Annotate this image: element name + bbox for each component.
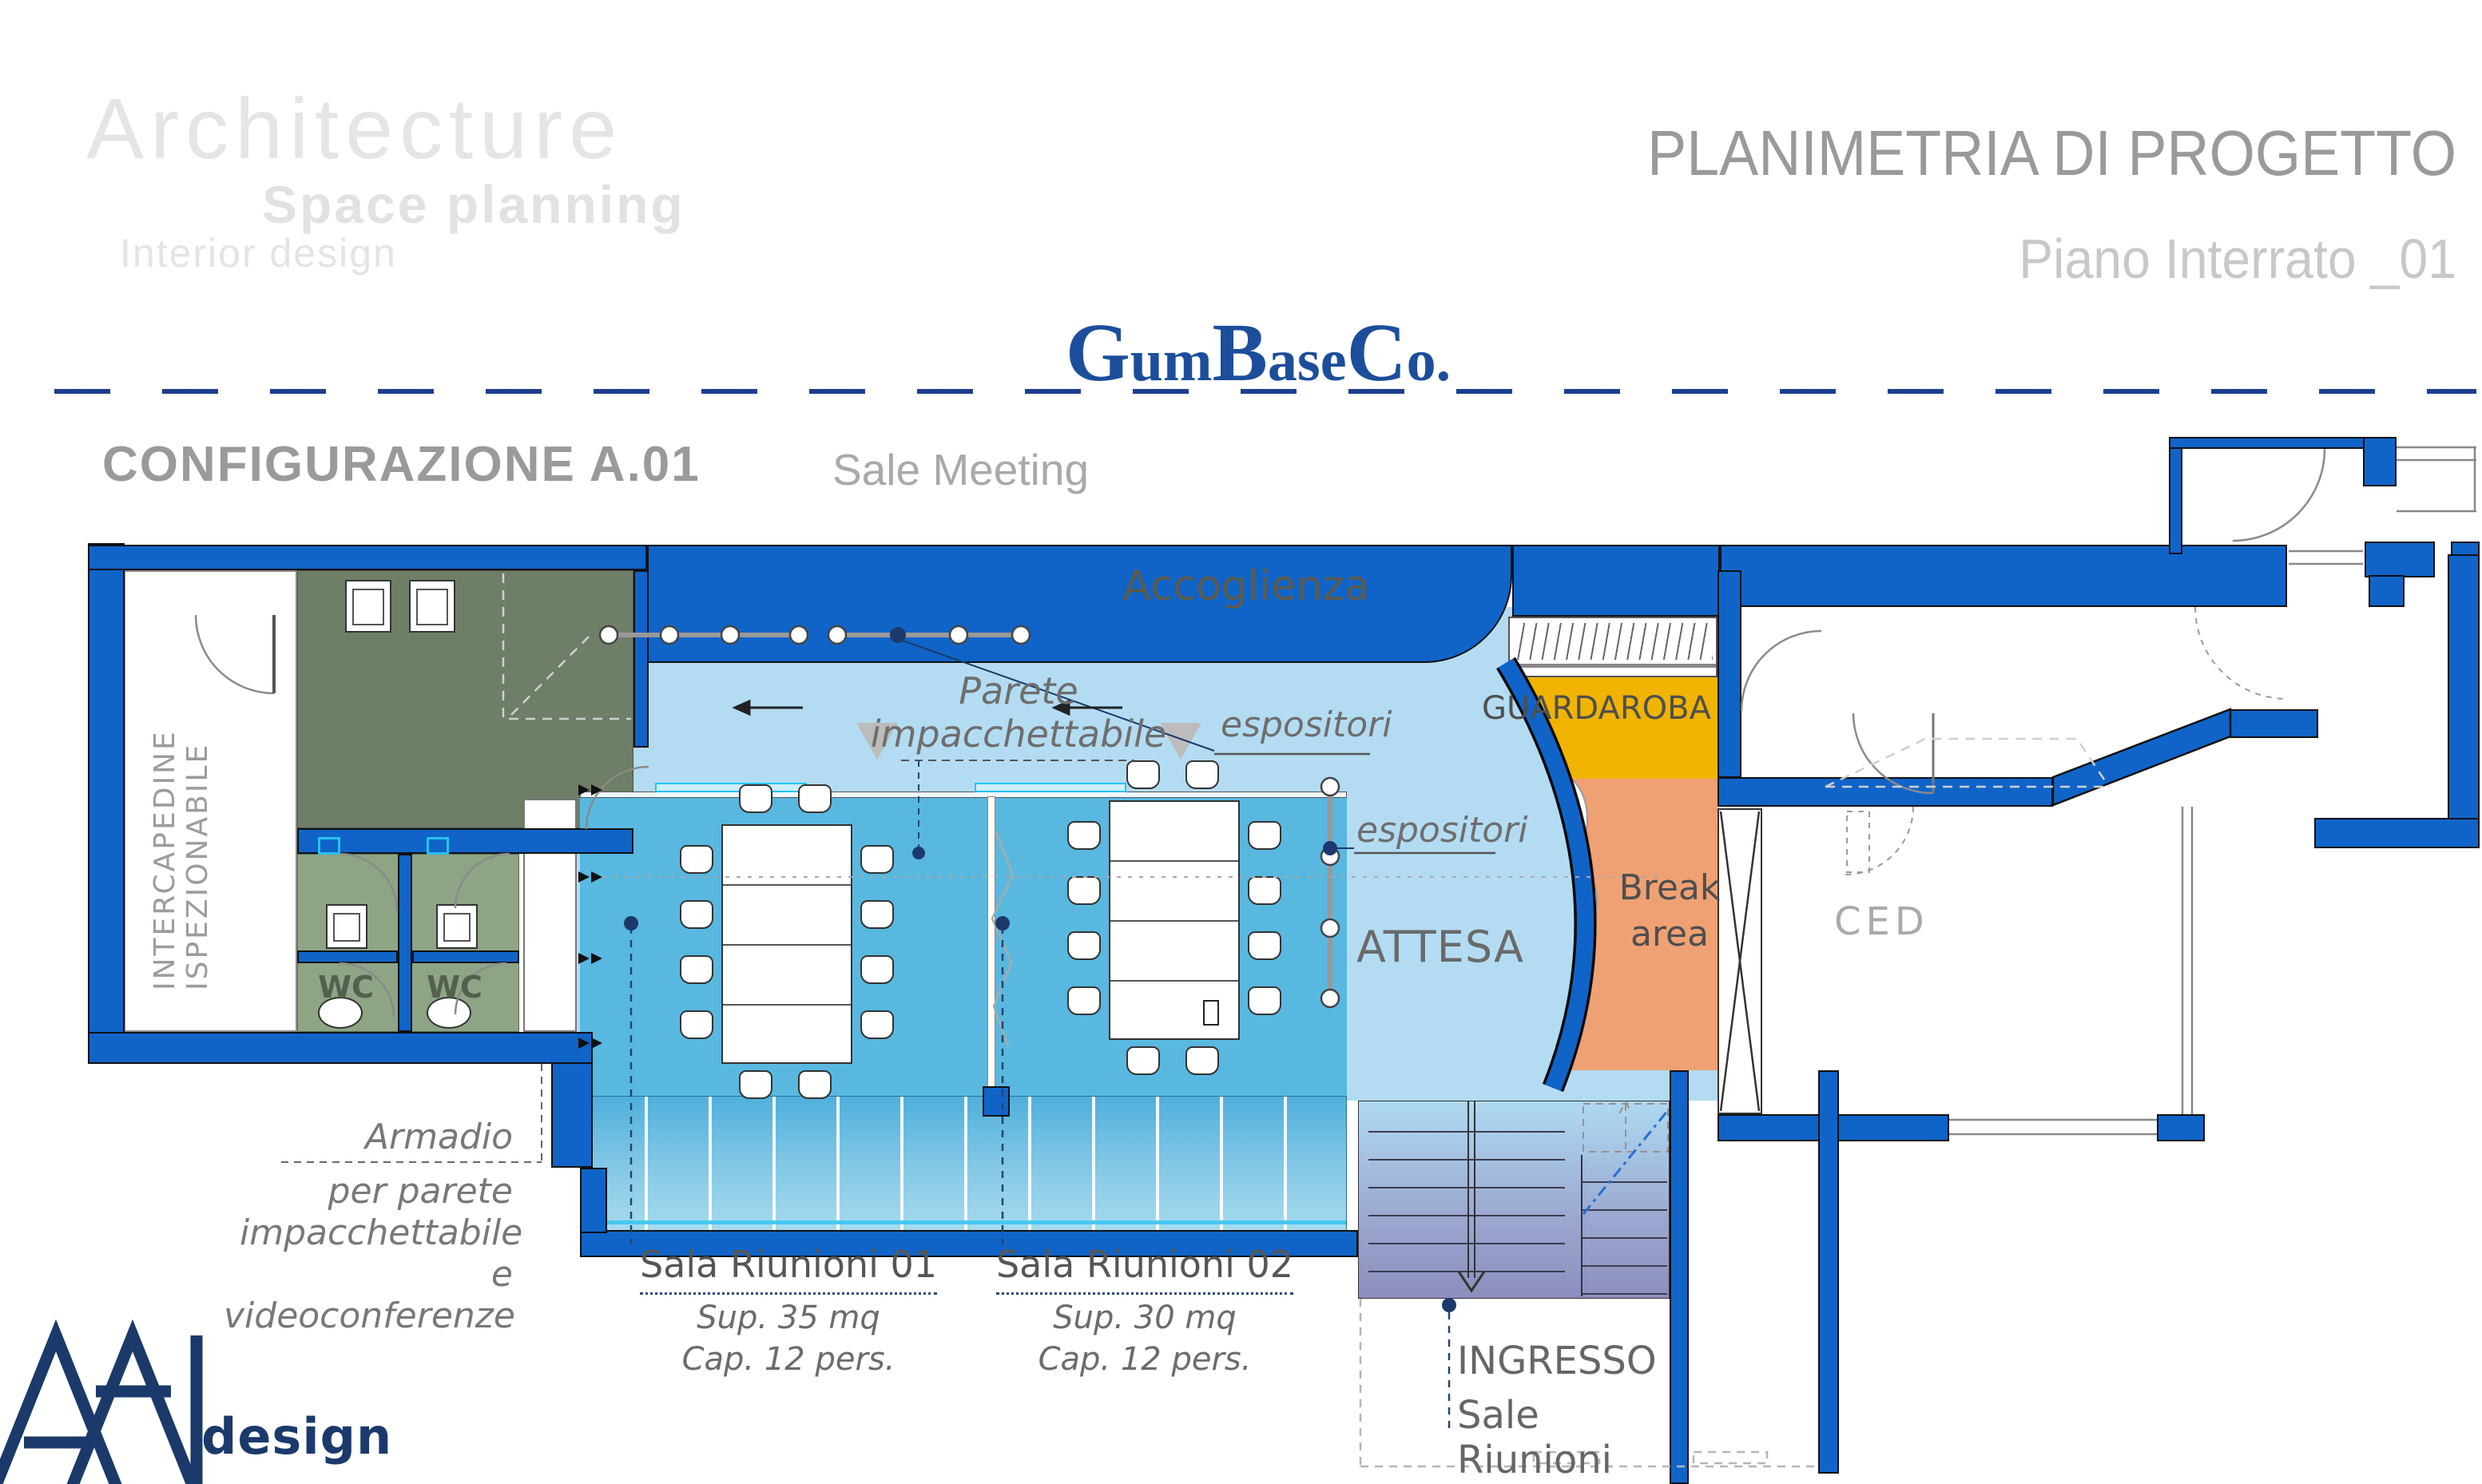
door-arc xyxy=(1741,631,1821,711)
sala1-cap: Cap. 12 pers. xyxy=(609,1341,968,1378)
label-armadio-4: e xyxy=(264,1254,513,1295)
door-arc xyxy=(340,854,397,911)
label-intercapedine: INTERCAPEDINE ISPEZIONABILE xyxy=(149,615,214,990)
label-armadio-2: per parete xyxy=(264,1171,513,1212)
door-arc xyxy=(455,854,510,908)
door-arc-dashed xyxy=(1845,807,1913,875)
label-attesa: ATTESA xyxy=(1356,922,1540,972)
ceiling-projection xyxy=(511,633,593,715)
label-wc2: WC xyxy=(427,970,483,1005)
label-ingresso-1: INGRESSO xyxy=(1457,1339,1665,1383)
label-sala1: Sala Riunioni 01 Sup. 35 mq Cap. 12 pers… xyxy=(609,1243,968,1378)
sala1-sup: Sup. 35 mq xyxy=(609,1299,968,1336)
wall-marker-arrows xyxy=(578,784,602,1049)
label-intercapedine-line1: INTERCAPEDINE xyxy=(149,729,181,990)
sala1-name: Sala Riunioni 01 xyxy=(640,1243,937,1295)
label-ingresso-2: Sale Riunioni xyxy=(1457,1393,1697,1482)
stairs-handrail-dashed xyxy=(1583,1110,1668,1214)
label-ced: CED xyxy=(1834,899,1962,944)
sala2-name: Sala Riunioni 02 xyxy=(996,1243,1293,1295)
label-guardaroba: GUARDAROBA xyxy=(1482,690,1710,727)
floor-plan-sheet: Architecture Space planning Interior des… xyxy=(0,0,2482,1484)
ama-monogram xyxy=(0,1335,197,1484)
label-parete-1: Parete xyxy=(903,669,1134,712)
door-arc-dashed xyxy=(2195,607,2287,699)
label-accoglienza: Accoglienza xyxy=(999,562,1494,610)
label-armadio-3: impacchettabile xyxy=(240,1212,513,1253)
parete-leader xyxy=(901,760,1134,859)
label-wc1: WC xyxy=(318,970,374,1005)
label-armadio-5: videoconferenze xyxy=(224,1296,513,1336)
label-break-2: area xyxy=(1598,914,1741,954)
ceiling-projection xyxy=(503,573,631,719)
label-espositori-side: espositori xyxy=(1356,810,1524,851)
leader-dot xyxy=(1442,1298,1456,1312)
leader-dot xyxy=(624,916,638,930)
door-arc xyxy=(2233,449,2325,541)
door-arc xyxy=(586,767,649,829)
label-break-1: Break xyxy=(1598,867,1741,908)
brand-design-text: design xyxy=(201,1407,441,1466)
leader-dot xyxy=(995,916,1010,930)
label-parete-2: impacchettabile xyxy=(867,712,1170,756)
sala2-cap: Cap. 12 pers. xyxy=(965,1341,1324,1378)
label-espositori-top: espositori xyxy=(1221,704,1388,745)
sala-leaders xyxy=(631,927,1003,1244)
dashed-box xyxy=(1847,811,1869,872)
label-armadio-1: Armadio xyxy=(264,1117,513,1157)
diagonal-wall xyxy=(2053,709,2230,805)
label-intercapedine-line2: ISPEZIONABILE xyxy=(181,743,214,990)
label-sala2: Sala Riunioni 02 Sup. 30 mq Cap. 12 pers… xyxy=(965,1243,1324,1378)
sala2-sup: Sup. 30 mq xyxy=(965,1299,1324,1336)
